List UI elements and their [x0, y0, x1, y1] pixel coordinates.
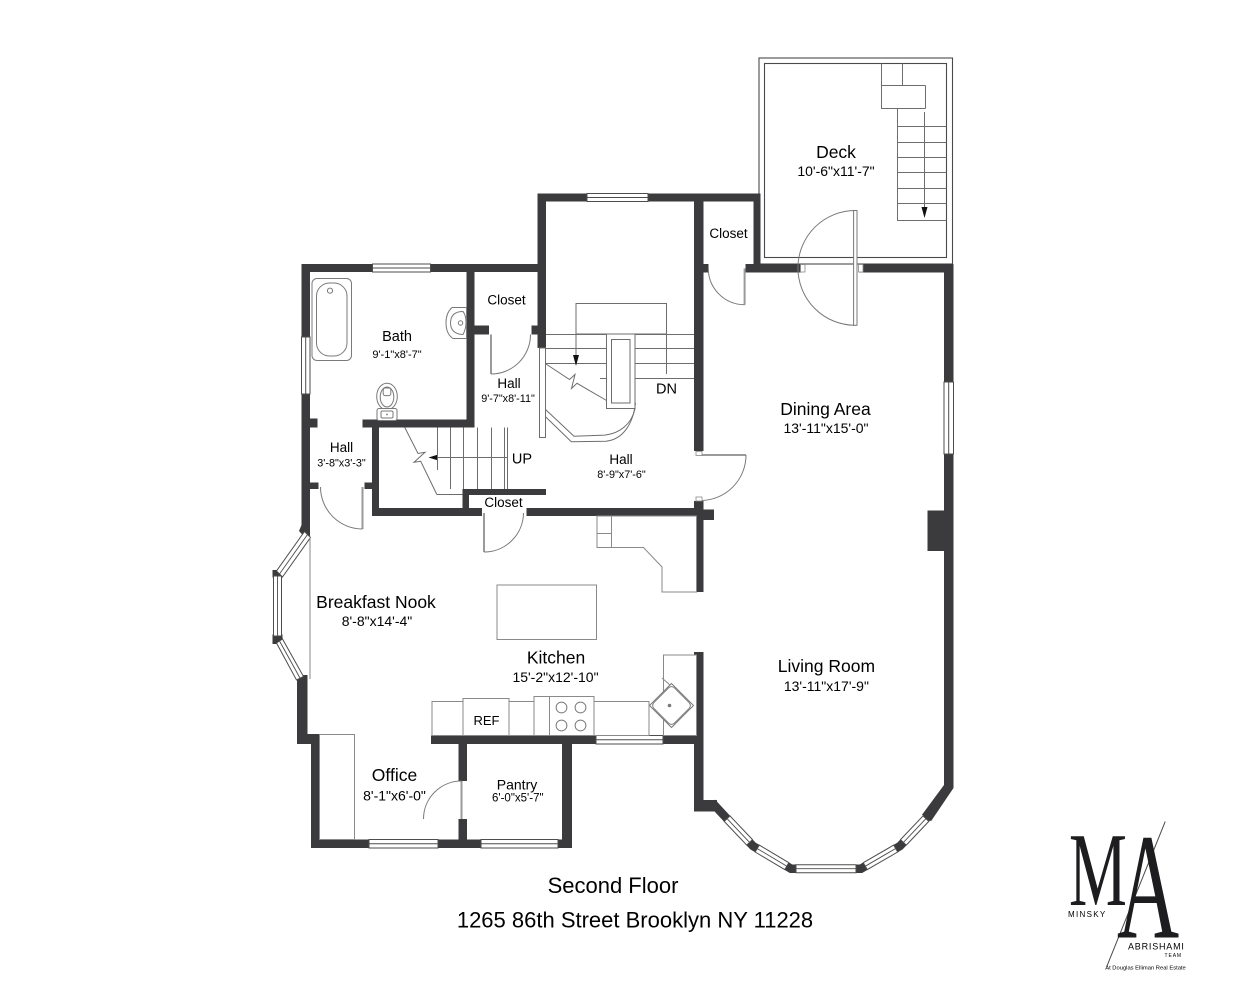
- svg-text:UP: UP: [512, 452, 532, 468]
- svg-text:TEAM: TEAM: [1165, 953, 1183, 959]
- svg-text:Pantry: Pantry: [497, 777, 537, 793]
- svg-text:10'-6"x11'-7": 10'-6"x11'-7": [797, 163, 874, 179]
- svg-text:Closet: Closet: [709, 226, 748, 241]
- svg-text:Living Room: Living Room: [778, 656, 875, 676]
- svg-text:Office: Office: [372, 765, 417, 785]
- svg-text:8'-9"x7'-6": 8'-9"x7'-6": [597, 469, 646, 481]
- svg-text:6'-0"x5'-7": 6'-0"x5'-7": [492, 793, 544, 805]
- svg-text:Closet: Closet: [484, 495, 523, 510]
- svg-text:9'-1"x8'-7": 9'-1"x8'-7": [372, 349, 421, 361]
- svg-text:Dining Area: Dining Area: [780, 399, 871, 419]
- svg-text:Hall: Hall: [609, 452, 632, 467]
- svg-text:8'-1"x6'-0": 8'-1"x6'-0": [363, 788, 426, 804]
- svg-text:REF: REF: [474, 713, 500, 728]
- svg-text:DN: DN: [656, 382, 677, 398]
- svg-text:15'-2"x12'-10": 15'-2"x12'-10": [512, 669, 598, 685]
- svg-text:ABRISHAMI: ABRISHAMI: [1128, 942, 1185, 952]
- svg-text:Closet: Closet: [487, 293, 526, 308]
- svg-text:9'-7"x8'-11": 9'-7"x8'-11": [481, 393, 535, 405]
- svg-text:8'-8"x14'-4": 8'-8"x14'-4": [342, 613, 413, 629]
- svg-text:Breakfast Nook: Breakfast Nook: [316, 592, 436, 612]
- svg-text:MINSKY: MINSKY: [1068, 910, 1106, 919]
- svg-text:Bath: Bath: [382, 329, 412, 345]
- svg-text:Hall: Hall: [330, 440, 353, 455]
- svg-text:1265 86th Street Brooklyn NY 1: 1265 86th Street Brooklyn NY 11228: [457, 908, 813, 933]
- svg-text:Deck: Deck: [816, 142, 856, 162]
- svg-text:Hall: Hall: [497, 376, 520, 391]
- svg-text:At Douglas Elliman Real Estate: At Douglas Elliman Real Estate: [1105, 965, 1186, 971]
- svg-text:13'-11"x17'-9": 13'-11"x17'-9": [784, 678, 869, 694]
- svg-text:13'-11"x15'-0": 13'-11"x15'-0": [783, 420, 868, 436]
- svg-text:Second Floor: Second Floor: [548, 873, 679, 898]
- svg-text:3'-8"x3'-3": 3'-8"x3'-3": [317, 458, 366, 470]
- svg-text:Kitchen: Kitchen: [527, 648, 585, 668]
